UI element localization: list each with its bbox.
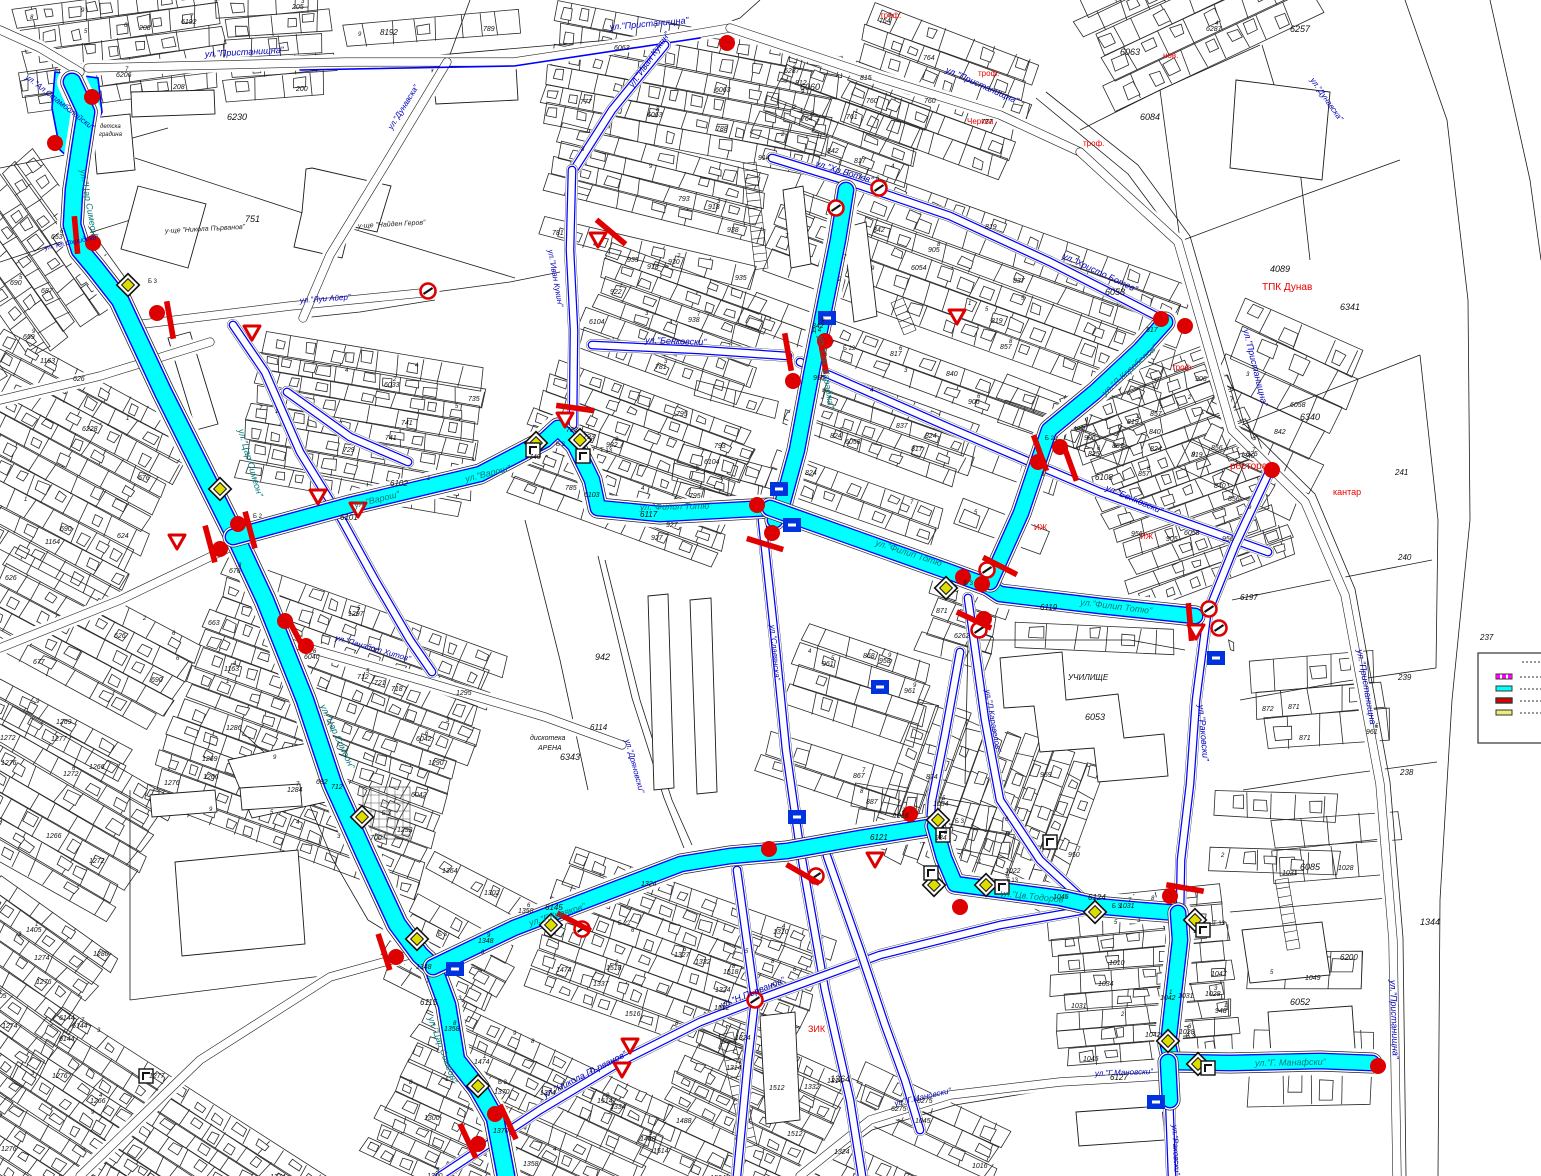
svg-text:4089: 4089	[1270, 264, 1290, 274]
svg-text:1: 1	[1136, 414, 1139, 420]
svg-text:793: 793	[678, 196, 690, 203]
svg-text:817: 817	[1146, 327, 1159, 334]
svg-text:956: 956	[813, 375, 825, 382]
svg-text:ЗИК: ЗИК	[808, 1024, 826, 1034]
svg-text:6114: 6114	[590, 723, 608, 732]
svg-text:6042: 6042	[411, 792, 427, 799]
svg-text:1327: 1327	[674, 952, 691, 959]
svg-text:687: 687	[41, 288, 54, 295]
svg-text:1: 1	[126, 416, 129, 422]
svg-text:205: 205	[291, 4, 304, 11]
svg-text:626: 626	[5, 575, 17, 582]
svg-text:721: 721	[374, 680, 386, 687]
svg-text:677: 677	[33, 659, 46, 666]
svg-text:6058: 6058	[1184, 530, 1200, 537]
svg-text:2: 2	[1187, 395, 1192, 401]
svg-text:1031: 1031	[1071, 1003, 1087, 1010]
svg-text:ИЖ: ИЖ	[1034, 523, 1048, 532]
svg-text:712: 712	[357, 674, 369, 681]
svg-text:842: 842	[873, 227, 885, 234]
svg-text:6124: 6124	[1088, 893, 1106, 902]
svg-text:200: 200	[295, 86, 308, 93]
svg-text:956: 956	[1222, 536, 1234, 543]
svg-text:1310: 1310	[773, 929, 789, 936]
svg-text:785: 785	[565, 485, 577, 492]
svg-text:УЧИЛИЩЕ: УЧИЛИЩЕ	[1067, 673, 1109, 682]
svg-text:нов.: нов.	[1163, 51, 1178, 60]
svg-text:1488: 1488	[640, 1136, 656, 1143]
svg-text:Б 22: Б 22	[843, 346, 856, 352]
svg-text:2: 2	[780, 132, 785, 138]
svg-text:700: 700	[370, 835, 382, 842]
svg-text:842: 842	[827, 148, 839, 155]
svg-text:детска: детска	[100, 124, 121, 130]
svg-text:2: 2	[614, 960, 619, 966]
svg-text:1516: 1516	[625, 1011, 641, 1018]
svg-text:1266: 1266	[46, 833, 62, 840]
svg-text:1272: 1272	[0, 735, 16, 742]
svg-text:935: 935	[735, 275, 747, 282]
svg-text:6200: 6200	[1340, 953, 1358, 962]
svg-text:1295: 1295	[456, 690, 472, 697]
svg-text:237: 237	[1479, 633, 1494, 642]
svg-text:1324: 1324	[834, 1149, 850, 1156]
svg-text:1292: 1292	[397, 827, 413, 834]
svg-text:1290: 1290	[428, 760, 444, 767]
svg-text:6108: 6108	[1095, 473, 1113, 482]
svg-text:956: 956	[1131, 531, 1143, 538]
svg-text:2: 2	[1220, 853, 1225, 859]
svg-text:1348: 1348	[416, 964, 432, 971]
svg-text:958: 958	[879, 658, 891, 665]
svg-text:ТПК Дунав: ТПК Дунав	[1262, 282, 1312, 293]
svg-text:6287: 6287	[784, 68, 801, 75]
svg-text:6052: 6052	[1290, 997, 1310, 1007]
svg-text:Б 3: Б 3	[955, 819, 965, 825]
svg-text:906: 906	[1195, 376, 1207, 383]
svg-text:922: 922	[610, 289, 622, 296]
svg-text:1474: 1474	[474, 1059, 490, 1066]
svg-text:1274: 1274	[2, 1023, 18, 1030]
svg-text:1276: 1276	[36, 979, 52, 986]
svg-text:1274: 1274	[34, 955, 50, 962]
svg-text:2: 2	[695, 467, 700, 473]
svg-text:6117: 6117	[640, 510, 658, 519]
svg-text:1358: 1358	[518, 908, 534, 915]
svg-text:840: 840	[946, 371, 958, 378]
svg-text:729: 729	[343, 447, 355, 454]
svg-text:6104: 6104	[589, 319, 605, 326]
svg-text:6228: 6228	[82, 426, 98, 433]
svg-text:935: 935	[627, 257, 639, 264]
svg-text:1: 1	[35, 922, 38, 928]
svg-text:867: 867	[853, 773, 866, 780]
svg-text:2: 2	[792, 63, 797, 69]
svg-text:6058: 6058	[845, 439, 861, 446]
svg-text:1332: 1332	[804, 1084, 820, 1091]
svg-text:6054: 6054	[911, 265, 927, 272]
svg-text:1474: 1474	[556, 967, 572, 974]
svg-text:676: 676	[229, 568, 241, 575]
svg-text:1512: 1512	[787, 1131, 803, 1138]
svg-text:817: 817	[890, 351, 903, 358]
svg-text:626: 626	[114, 633, 126, 640]
svg-text:837: 837	[896, 423, 909, 430]
svg-text:1: 1	[483, 1054, 486, 1060]
svg-text:1: 1	[445, 1077, 448, 1083]
svg-text:Б 3: Б 3	[148, 279, 158, 285]
svg-text:8192: 8192	[380, 28, 398, 37]
svg-text:1016: 1016	[972, 1163, 988, 1170]
svg-text:777: 777	[580, 99, 593, 106]
svg-text:6144: 6144	[59, 1036, 75, 1043]
svg-text:1042: 1042	[1160, 995, 1176, 1002]
svg-text:761: 761	[846, 114, 858, 121]
svg-text:1488: 1488	[676, 1118, 692, 1125]
svg-text:905: 905	[1166, 536, 1178, 543]
svg-text:626: 626	[73, 376, 85, 383]
svg-text:1405: 1405	[0, 993, 7, 1000]
svg-text:1272: 1272	[89, 858, 105, 865]
svg-text:ул.”Г. Манафски”: ул.”Г. Манафски”	[1254, 1057, 1327, 1068]
svg-text:градина: градина	[99, 132, 123, 138]
svg-text:208: 208	[138, 25, 151, 32]
svg-text:6085: 6085	[1300, 862, 1321, 872]
svg-text:793: 793	[583, 434, 595, 441]
svg-text:1286: 1286	[226, 725, 242, 732]
svg-text:6101: 6101	[340, 513, 358, 522]
svg-text:2: 2	[1120, 1012, 1125, 1018]
svg-text:718: 718	[391, 686, 403, 693]
svg-text:1045: 1045	[1053, 894, 1069, 901]
svg-text:1031: 1031	[1119, 903, 1135, 910]
svg-text:690: 690	[151, 677, 163, 684]
svg-text:2: 2	[809, 111, 814, 117]
svg-text:Т 13: Т 13	[1006, 878, 1019, 884]
svg-text:961: 961	[904, 688, 916, 695]
svg-text:959: 959	[1040, 772, 1052, 779]
svg-text:6104: 6104	[704, 459, 720, 466]
svg-text:781: 781	[552, 230, 564, 237]
svg-text:942: 942	[595, 652, 610, 662]
svg-text:6192: 6192	[181, 19, 197, 26]
svg-text:872: 872	[1262, 706, 1274, 713]
svg-text:938: 938	[727, 227, 739, 234]
svg-text:961: 961	[1366, 729, 1378, 736]
svg-text:1276: 1276	[1, 760, 17, 767]
svg-text:1: 1	[968, 301, 971, 307]
svg-text:1324: 1324	[641, 881, 657, 888]
svg-text:241: 241	[1394, 468, 1408, 477]
svg-text:950: 950	[1068, 852, 1080, 859]
svg-text:824: 824	[925, 433, 937, 440]
svg-text:1297: 1297	[348, 611, 365, 618]
svg-text:1332: 1332	[695, 959, 711, 966]
svg-text:789: 789	[483, 26, 495, 33]
svg-text:1276: 1276	[52, 1073, 68, 1080]
svg-text:1028: 1028	[1338, 865, 1354, 872]
svg-text:1031: 1031	[1282, 870, 1298, 877]
svg-text:2: 2	[901, 808, 906, 814]
svg-text:6340: 6340	[1300, 412, 1320, 422]
svg-text:6257: 6257	[1290, 24, 1311, 34]
svg-text:6206: 6206	[116, 72, 132, 79]
svg-text:1358: 1358	[444, 1026, 460, 1033]
svg-text:906: 906	[968, 399, 980, 406]
svg-text:Б 3: Б 3	[556, 442, 566, 448]
svg-text:817: 817	[854, 158, 867, 165]
svg-text:1337: 1337	[593, 981, 610, 988]
svg-text:1514: 1514	[653, 1148, 669, 1155]
svg-text:ресторант: ресторант	[1230, 461, 1278, 472]
svg-text:6197: 6197	[1240, 593, 1258, 602]
svg-text:1: 1	[855, 109, 858, 115]
svg-text:819: 819	[985, 224, 997, 231]
svg-text:238: 238	[1399, 768, 1414, 777]
svg-text:6103: 6103	[584, 492, 600, 499]
svg-text:2: 2	[142, 616, 147, 622]
svg-text:6115: 6115	[420, 998, 438, 1007]
svg-text:692: 692	[316, 779, 328, 786]
svg-text:764: 764	[879, 18, 891, 25]
svg-text:1518: 1518	[723, 969, 739, 976]
svg-text:793: 793	[714, 443, 726, 450]
svg-text:6127: 6127	[1110, 1073, 1128, 1082]
svg-text:735: 735	[468, 396, 480, 403]
svg-text:824: 824	[1150, 446, 1162, 453]
svg-text:6144: 6144	[72, 1023, 88, 1030]
svg-text:930: 930	[668, 259, 680, 266]
svg-text:1314: 1314	[726, 1065, 742, 1072]
svg-text:1: 1	[427, 476, 430, 482]
svg-text:1405: 1405	[26, 927, 42, 934]
svg-text:795: 795	[689, 493, 701, 500]
svg-text:239: 239	[1397, 673, 1412, 682]
svg-text:1348: 1348	[478, 938, 494, 945]
svg-text:857: 857	[1150, 411, 1163, 418]
svg-text:825: 825	[1088, 451, 1100, 458]
svg-text:6275: 6275	[891, 1106, 907, 1113]
svg-text:871: 871	[1288, 704, 1300, 711]
svg-text:927: 927	[651, 535, 664, 542]
svg-text:871: 871	[1299, 735, 1311, 742]
svg-text:троф.: троф.	[978, 69, 999, 78]
svg-text:777: 777	[981, 119, 994, 126]
svg-text:905: 905	[928, 247, 940, 254]
svg-text:6119: 6119	[1040, 603, 1058, 612]
svg-text:Б 22: Б 22	[618, 921, 631, 927]
svg-text:922: 922	[606, 442, 618, 449]
svg-text:208: 208	[172, 84, 185, 91]
svg-text:2: 2	[837, 277, 842, 283]
svg-text:2: 2	[392, 377, 397, 383]
svg-text:1034: 1034	[1098, 981, 1114, 988]
svg-text:1045: 1045	[915, 1118, 931, 1125]
svg-text:6063: 6063	[1120, 47, 1140, 57]
svg-text:6102: 6102	[390, 479, 408, 488]
svg-text:дискотека: дискотека	[530, 734, 565, 742]
svg-text:856: 856	[1211, 445, 1223, 452]
svg-text:938: 938	[688, 317, 700, 324]
svg-text:1370: 1370	[493, 1128, 509, 1135]
svg-text:659: 659	[23, 334, 35, 341]
svg-text:1034: 1034	[933, 801, 949, 808]
svg-text:1042: 1042	[1145, 1032, 1161, 1039]
svg-text:918: 918	[647, 264, 659, 271]
svg-text:741: 741	[385, 435, 397, 442]
svg-text:6341: 6341	[1340, 302, 1360, 312]
svg-text:6121: 6121	[870, 833, 888, 842]
svg-text:1300: 1300	[424, 1115, 440, 1122]
svg-text:1: 1	[900, 1101, 903, 1107]
svg-text:Т 13: Т 13	[1213, 921, 1226, 927]
svg-text:1: 1	[275, 409, 278, 415]
svg-text:1266: 1266	[90, 1098, 106, 1105]
svg-text:751: 751	[245, 214, 260, 224]
svg-text:1045: 1045	[1083, 1056, 1099, 1063]
svg-text:824: 824	[830, 433, 842, 440]
svg-text:795: 795	[676, 411, 688, 418]
svg-text:троф: троф	[1172, 363, 1192, 372]
svg-text:6262: 6262	[954, 633, 970, 640]
svg-text:1344: 1344	[1420, 917, 1440, 927]
svg-text:6287: 6287	[1206, 26, 1223, 33]
svg-text:Б 3: Б 3	[964, 581, 974, 587]
svg-text:948: 948	[1215, 1008, 1227, 1015]
svg-text:712: 712	[331, 784, 343, 791]
svg-text:1: 1	[24, 497, 27, 503]
svg-text:6042: 6042	[416, 736, 432, 743]
svg-text:1512: 1512	[769, 1085, 785, 1092]
svg-text:2: 2	[1092, 430, 1097, 436]
svg-text:1364: 1364	[442, 868, 458, 875]
svg-text:840: 840	[1149, 429, 1161, 436]
svg-text:Б 22: Б 22	[1045, 436, 1058, 442]
svg-text:837: 837	[1013, 278, 1026, 285]
svg-text:Б 3: Б 3	[382, 811, 392, 817]
svg-text:1276: 1276	[164, 780, 180, 787]
svg-text:819: 819	[991, 318, 1003, 325]
svg-text:819: 819	[1127, 419, 1139, 426]
svg-text:934: 934	[935, 835, 947, 842]
svg-text:741: 741	[401, 420, 413, 427]
svg-text:918: 918	[708, 204, 720, 211]
svg-text:653: 653	[51, 234, 63, 241]
svg-text:АРЕНА: АРЕНА	[537, 745, 562, 752]
svg-text:1: 1	[1169, 990, 1172, 996]
svg-text:815: 815	[860, 75, 872, 82]
svg-text:781: 781	[655, 364, 667, 371]
svg-text:2: 2	[722, 1000, 727, 1006]
svg-text:Б 3: Б 3	[498, 1080, 508, 1086]
svg-text:914: 914	[758, 155, 770, 162]
svg-text:1358: 1358	[523, 1161, 539, 1168]
svg-text:857: 857	[1138, 471, 1151, 478]
svg-text:783: 783	[566, 427, 578, 434]
svg-text:1284: 1284	[287, 787, 303, 794]
svg-text:857: 857	[1000, 344, 1013, 351]
svg-text:1277: 1277	[149, 1073, 166, 1080]
svg-text:887: 887	[866, 799, 879, 806]
svg-text:871: 871	[936, 608, 948, 615]
svg-text:1374: 1374	[540, 1090, 556, 1097]
svg-text:1324: 1324	[735, 1035, 751, 1042]
svg-text:1049: 1049	[1305, 975, 1321, 982]
svg-text:1276: 1276	[1, 1146, 17, 1153]
svg-text:764: 764	[801, 116, 813, 123]
svg-text:868: 868	[863, 653, 875, 660]
svg-text:6144: 6144	[59, 1015, 75, 1022]
svg-text:1016: 1016	[893, 813, 909, 820]
svg-text:6145: 6145	[545, 903, 563, 912]
svg-text:676: 676	[138, 475, 150, 482]
svg-text:1028: 1028	[1205, 991, 1221, 998]
svg-text:1028: 1028	[1179, 1029, 1195, 1036]
svg-text:788: 788	[716, 126, 728, 133]
svg-text:1272: 1272	[63, 771, 79, 778]
svg-text:6063: 6063	[614, 45, 630, 52]
svg-text:1031: 1031	[1178, 993, 1194, 1000]
svg-text:961: 961	[822, 661, 834, 668]
svg-text:1522: 1522	[714, 1005, 730, 1012]
svg-text:1302: 1302	[484, 890, 500, 897]
svg-text:6033: 6033	[384, 382, 400, 389]
svg-text:624: 624	[117, 533, 129, 540]
svg-text:1269: 1269	[202, 756, 218, 763]
svg-text:1314: 1314	[827, 1078, 843, 1085]
svg-text:840: 840	[1214, 483, 1226, 490]
svg-text:824: 824	[805, 470, 817, 477]
svg-text:1266: 1266	[89, 764, 105, 771]
svg-text:906: 906	[1084, 435, 1096, 442]
svg-text:690: 690	[10, 280, 22, 287]
svg-text:1: 1	[978, 859, 981, 865]
svg-text:Б 3: Б 3	[438, 932, 448, 938]
svg-text:1370: 1370	[494, 1089, 510, 1096]
svg-text:6058: 6058	[1290, 402, 1306, 409]
svg-text:1266: 1266	[203, 774, 219, 781]
svg-text:6275: 6275	[917, 1098, 933, 1105]
svg-text:2: 2	[792, 105, 797, 111]
svg-text:812: 812	[795, 80, 807, 87]
svg-text:817: 817	[911, 446, 924, 453]
svg-text:6058: 6058	[1105, 287, 1125, 297]
svg-text:1280: 1280	[93, 951, 109, 958]
svg-text:6063: 6063	[647, 112, 663, 119]
svg-text:1334: 1334	[610, 1104, 626, 1111]
svg-text:240: 240	[1397, 553, 1412, 562]
svg-text:1010: 1010	[1109, 960, 1125, 967]
svg-text:1163: 1163	[40, 358, 55, 365]
svg-text:1: 1	[226, 679, 229, 685]
svg-text:1022: 1022	[1005, 868, 1021, 875]
svg-text:кантар: кантар	[1333, 487, 1361, 497]
svg-text:6040: 6040	[304, 654, 320, 661]
svg-text:1163: 1163	[224, 666, 239, 673]
svg-text:760: 760	[866, 98, 878, 105]
svg-text:6230: 6230	[227, 112, 247, 122]
svg-text:1518: 1518	[606, 965, 622, 972]
svg-text:1277: 1277	[51, 736, 68, 743]
svg-text:663: 663	[208, 620, 220, 627]
svg-text:1324: 1324	[715, 987, 731, 994]
svg-text:856: 856	[1228, 496, 1240, 503]
svg-text:1: 1	[1224, 1003, 1227, 1009]
svg-text:1269: 1269	[56, 719, 72, 726]
svg-text:1164: 1164	[45, 539, 60, 546]
svg-text:6053: 6053	[1085, 712, 1105, 722]
svg-text:927: 927	[666, 522, 679, 529]
